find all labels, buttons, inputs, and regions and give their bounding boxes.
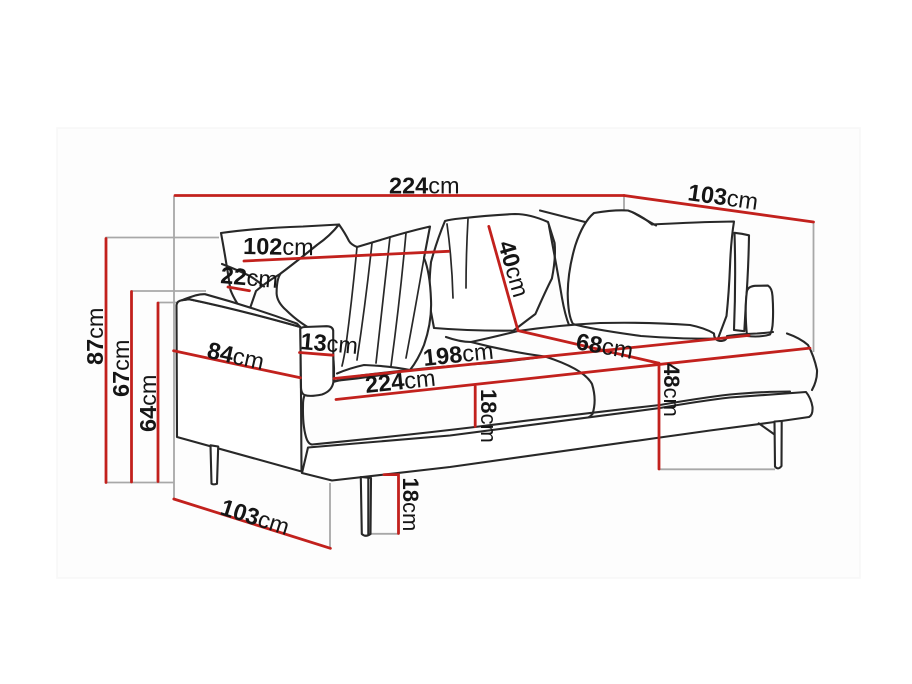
svg-text:18cm: 18cm (398, 478, 423, 532)
svg-text:102cm: 102cm (243, 233, 314, 260)
svg-text:22cm: 22cm (220, 262, 280, 293)
svg-text:18cm: 18cm (476, 389, 501, 443)
svg-text:224cm: 224cm (389, 173, 460, 199)
svg-text:13cm: 13cm (300, 328, 360, 359)
svg-text:48cm: 48cm (659, 363, 684, 417)
svg-text:67cm: 67cm (108, 340, 134, 397)
svg-text:64cm: 64cm (135, 375, 161, 432)
svg-text:87cm: 87cm (82, 308, 108, 365)
